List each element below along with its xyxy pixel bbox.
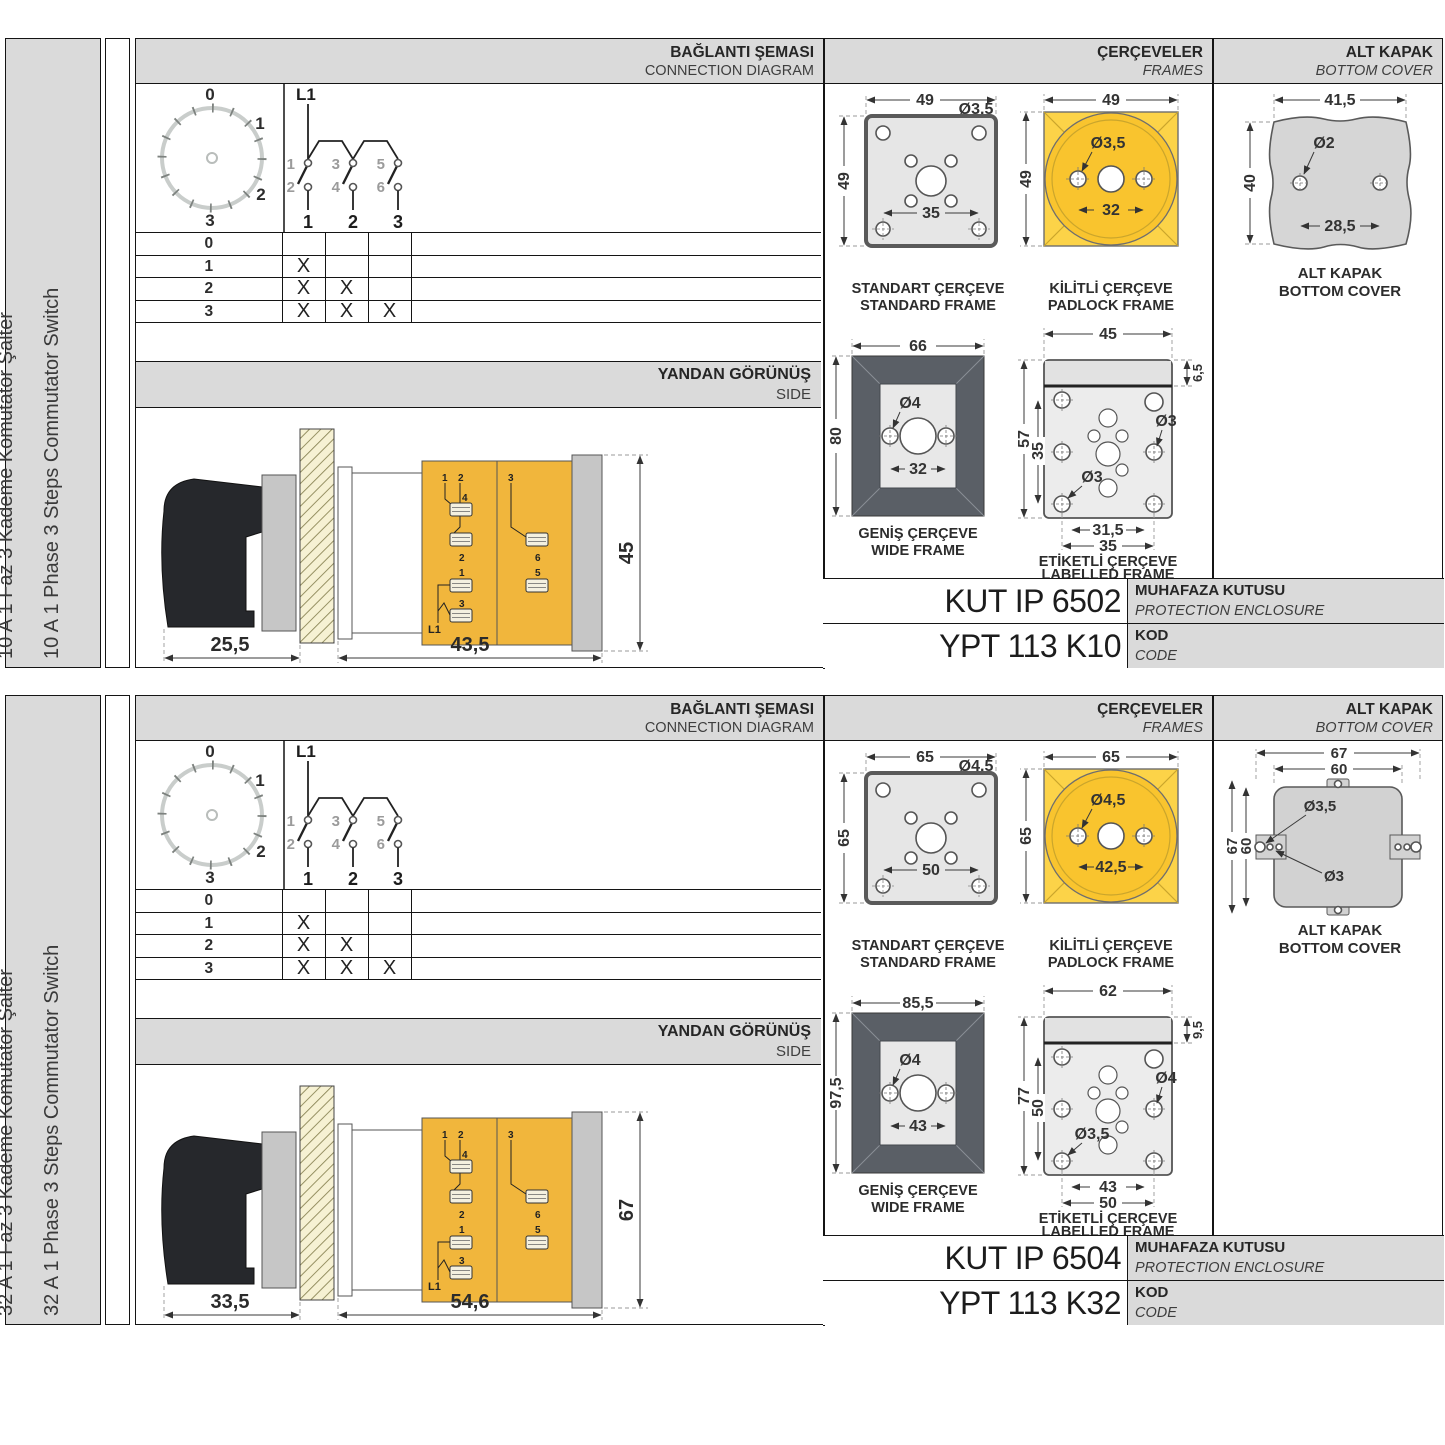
terminal-label: 5 (535, 568, 541, 579)
dim-pitch-1: 43 (1099, 1179, 1117, 1196)
header-connection-en: CONNECTION DIAGRAM (136, 719, 814, 738)
dim-width: 62 (1099, 983, 1117, 1000)
enclosure-code: KUT IP 6504 (823, 1235, 1127, 1280)
dim-width: 66 (909, 338, 927, 355)
contact-5: 5 (377, 156, 385, 173)
mark-cell: X (283, 913, 326, 935)
rear-plate (572, 455, 602, 651)
header-cover-tr: ALT KAPAK (1212, 43, 1433, 62)
mark-cell (369, 278, 412, 300)
dim-width: 65 (1102, 749, 1120, 766)
terminal-label: 1 (459, 568, 465, 579)
dial-pos-3: 3 (205, 868, 214, 887)
enclosure-label-en: PROTECTION ENCLOSURE (1135, 1258, 1444, 1278)
contact-4: 4 (332, 179, 341, 196)
mark-cell (283, 890, 326, 912)
output-2: 2 (348, 869, 358, 889)
contact-6: 6 (377, 836, 385, 853)
terminal-label: 2 (458, 1130, 464, 1141)
header-cover-tr: ALT KAPAK (1212, 700, 1433, 719)
bottom-cover-drawing: 67 60 67 60 Ø3,5 Ø3 ALT KAPAK BO (1212, 743, 1444, 963)
dim-pitch: 32 (909, 461, 927, 478)
contact-3: 3 (332, 813, 340, 830)
dim-tab: 6,5 (1190, 364, 1204, 382)
dim-width: 49 (916, 92, 934, 109)
mark-cell (369, 233, 412, 255)
dim-pitch: 42,5 (1095, 859, 1126, 876)
terminal-label: 5 (535, 1225, 541, 1236)
mark-cell (369, 256, 412, 278)
dim-height: 65 (1018, 827, 1035, 845)
panel-wall-hatched (300, 1086, 334, 1300)
product-code-label: KOD CODE (1127, 623, 1444, 668)
dial-pos-0: 0 (205, 85, 214, 104)
datasheet-body: BAĞLANTI ŞEMASI CONNECTION DIAGRAM ÇERÇE… (135, 38, 1443, 668)
mark-cell (326, 233, 369, 255)
dial-pos-3: 3 (205, 211, 214, 230)
dim-hole: Ø2 (1313, 135, 1334, 152)
header-connection-en: CONNECTION DIAGRAM (136, 62, 814, 81)
dim-width: 65 (916, 749, 934, 766)
rear-plate (572, 1112, 602, 1308)
mark-cell: X (326, 301, 369, 323)
terminal-label: 1 (442, 1130, 448, 1141)
row-label: 2 (136, 935, 283, 957)
side-header-tr: YANDAN GÖRÜNÜŞ (136, 1022, 811, 1042)
switch-handle (162, 479, 262, 627)
side-view-drawing: 1 2 3 4 (142, 415, 702, 667)
dial-pos-1: 1 (255, 114, 264, 133)
output-2: 2 (348, 212, 358, 232)
terminal-label: 1 (442, 473, 448, 484)
switching-table: 0 1 X 2 X X 3 X (136, 889, 821, 980)
header-cover-en: BOTTOM COVER (1212, 62, 1433, 81)
switching-table: 0 1 X 2 X X 3 X (136, 232, 821, 323)
mark-cell: X (326, 958, 369, 980)
mark-cell: X (283, 935, 326, 957)
frame-label-en: WIDE FRAME (871, 543, 965, 559)
dim-hole: Ø4 (899, 395, 920, 412)
dim-pitch: 28,5 (1324, 218, 1355, 235)
dim-height: 97,5 (828, 1077, 845, 1108)
enclosure-code-label: MUHAFAZA KUTUSU PROTECTION ENCLOSURE (1127, 1235, 1444, 1280)
dim-height: 45 (616, 542, 638, 564)
mark-cell (326, 913, 369, 935)
terminal-label: 4 (462, 493, 468, 504)
row-label: 3 (136, 958, 283, 980)
wide-frame-drawing: 66 Ø4 32 80 GENİŞ ÇERÇEVE WIDE FRAME (826, 334, 1011, 566)
dial-pos-2: 2 (256, 842, 265, 861)
row-label: 1 (136, 913, 283, 935)
dim-hole-right: Ø3 (1155, 413, 1176, 430)
product-code-label: KOD CODE (1127, 1280, 1444, 1325)
frame-label-en: PADLOCK FRAME (1048, 955, 1175, 971)
header-connection-tr: BAĞLANTI ŞEMASI (136, 43, 814, 62)
wide-frame-drawing: 85,5 Ø4 43 97,5 GENİŞ ÇERÇEVE WIDE F (826, 991, 1011, 1223)
side-view-header: YANDAN GÖRÜNÜŞ SIDE (136, 361, 821, 408)
frame-label-en: STANDARD FRAME (860, 955, 996, 971)
phase-label-L1: L1 (296, 742, 316, 761)
row-label: 0 (136, 233, 283, 255)
dim-pitch: 43 (909, 1118, 927, 1135)
dim-hole: Ø4 (899, 1052, 920, 1069)
dim-height: 80 (828, 427, 845, 445)
frame-label-en: STANDARD FRAME (860, 298, 996, 314)
output-3: 3 (393, 212, 403, 232)
dim-pitch-2: 35 (1099, 538, 1117, 555)
dim-height: 40 (1242, 174, 1259, 192)
mark-cell (326, 256, 369, 278)
side-view-drawing: 1 2 3 4 (142, 1072, 702, 1324)
spine-strip (105, 695, 130, 1325)
table-row: 0 (136, 890, 821, 913)
mark-cell: X (283, 256, 326, 278)
mark-cell: X (326, 278, 369, 300)
product-title-english: 32 A 1 Phase 3 Steps Commutator Switch (41, 945, 64, 1316)
frame-label-tr: KİLİTLİ ÇERÇEVE (1049, 280, 1173, 297)
mark-cell: X (283, 301, 326, 323)
side-view-header: YANDAN GÖRÜNÜŞ SIDE (136, 1018, 821, 1065)
side-header-en: SIDE (136, 385, 811, 405)
mark-cell: X (369, 958, 412, 980)
dim-inner-height: 35 (1030, 442, 1047, 460)
header-frames-en: FRAMES (823, 719, 1203, 738)
product-title-turkish: 32 A 1 Faz 3 Kademe Komütatör Şalter (0, 969, 18, 1316)
spine-strip (105, 38, 130, 668)
dial-pos-1: 1 (255, 771, 264, 790)
datasheet-body: BAĞLANTI ŞEMASI CONNECTION DIAGRAM ÇERÇE… (135, 695, 1443, 1325)
terminal-label: 6 (535, 1210, 541, 1221)
dim-width: 67 (1331, 745, 1348, 762)
dim-width: 45 (1099, 326, 1117, 343)
header-connection-diagram: BAĞLANTI ŞEMASI CONNECTION DIAGRAM (136, 696, 823, 741)
dim-hole: Ø3,5 (1091, 135, 1126, 152)
dim-height: 65 (836, 829, 853, 847)
cover-label-tr: ALT KAPAK (1298, 265, 1383, 282)
mark-cell (326, 890, 369, 912)
frame-label-tr: STANDART ÇERÇEVE (852, 938, 1005, 954)
cover-label-tr: ALT KAPAK (1298, 922, 1383, 939)
frame-label-tr: GENİŞ ÇERÇEVE (858, 525, 978, 542)
code-label-tr: KOD (1135, 1283, 1444, 1303)
table-row: 0 (136, 233, 821, 256)
mark-cell: X (369, 301, 412, 323)
dim-width: 49 (1102, 92, 1120, 109)
terminal-label-L1: L1 (428, 1281, 441, 1293)
row-label: 2 (136, 278, 283, 300)
output-3: 3 (393, 869, 403, 889)
header-bottom-cover: ALT KAPAK BOTTOM COVER (1212, 39, 1442, 84)
row-label: 3 (136, 301, 283, 323)
cover-label-en: BOTTOM COVER (1279, 283, 1401, 300)
cover-label-en: BOTTOM COVER (1279, 940, 1401, 957)
code-label-en: CODE (1135, 1303, 1444, 1323)
enclosure-label-en: PROTECTION ENCLOSURE (1135, 601, 1444, 621)
contact-1: 1 (287, 156, 295, 173)
switch-poles (298, 817, 402, 868)
frame-label-en: PADLOCK FRAME (1048, 298, 1175, 314)
dim-inner-width: 60 (1331, 761, 1348, 778)
dim-body-depth: 54,6 (451, 1291, 490, 1313)
contact-1: 1 (287, 813, 295, 830)
frame-label-tr: GENİŞ ÇERÇEVE (858, 1182, 978, 1199)
dim-hole: Ø4,5 (1091, 792, 1126, 809)
dim-width: 41,5 (1324, 92, 1355, 109)
header-connection-tr: BAĞLANTI ŞEMASI (136, 700, 814, 719)
enclosure-label-tr: MUHAFAZA KUTUSU (1135, 1238, 1444, 1258)
dim-body-depth: 43,5 (451, 634, 490, 656)
mark-cell (369, 935, 412, 957)
mounting-plate (262, 475, 296, 631)
code-label-en: CODE (1135, 646, 1444, 666)
dim-pitch: 35 (922, 205, 940, 222)
mounting-plate (262, 1132, 296, 1288)
mark-cell (369, 890, 412, 912)
terminal-label: 2 (459, 1210, 465, 1221)
dim-inner-height: 60 (1238, 838, 1255, 855)
product-code: YPT 113 K10 (823, 623, 1127, 668)
row-label: 0 (136, 890, 283, 912)
mark-cell: X (326, 935, 369, 957)
dim-width: 85,5 (902, 995, 933, 1012)
terminal-label-L1: L1 (428, 624, 441, 636)
enclosure-code-label: MUHAFAZA KUTUSU PROTECTION ENCLOSURE (1127, 578, 1444, 623)
dim-handle-depth: 25,5 (211, 634, 250, 656)
side-header-en: SIDE (136, 1042, 811, 1062)
contact-6: 6 (377, 179, 385, 196)
dim-hole-2: Ø3 (1324, 868, 1344, 885)
switch-handle (162, 1136, 262, 1284)
terminal-label: 6 (535, 553, 541, 564)
phase-label-L1: L1 (296, 85, 316, 104)
table-row: 1 X (136, 913, 821, 936)
dim-handle-depth: 33,5 (211, 1291, 250, 1313)
cover-plate (1274, 787, 1402, 907)
panel-wall-hatched (300, 429, 334, 643)
contact-2: 2 (287, 179, 295, 196)
terminal-label: 1 (459, 1225, 465, 1236)
dim-height: 49 (1018, 170, 1035, 188)
dim-hole-right: Ø4 (1155, 1070, 1176, 1087)
table-row: 2 X X (136, 278, 821, 301)
standard-frame-drawing: 65 Ø4,5 50 65 STANDART ÇERÇEVE STANDARD … (826, 743, 1011, 988)
switch-body: 1 2 3 4 (422, 1118, 572, 1302)
terminal-label: 3 (508, 1130, 514, 1141)
row-label: 1 (136, 256, 283, 278)
terminal-label: 3 (459, 1256, 465, 1267)
table-row: 1 X (136, 256, 821, 279)
switch-body: 1 2 3 4 (422, 461, 572, 645)
dim-pitch: 32 (1102, 202, 1120, 219)
product-title-turkish: 10 A 1 Faz 3 Kademe Komütatör Şalter (0, 312, 18, 659)
dim-pitch-2: 50 (1099, 1195, 1117, 1212)
product-title-english: 10 A 1 Phase 3 Steps Commutator Switch (41, 288, 64, 659)
header-frames: ÇERÇEVELER FRAMES (823, 696, 1212, 741)
code-label-tr: KOD (1135, 626, 1444, 646)
dim-hole-left: Ø3 (1081, 469, 1102, 486)
contact-4: 4 (332, 836, 341, 853)
column-divider-1 (823, 39, 825, 669)
mark-cell: X (283, 278, 326, 300)
product-section: 10 A 1 Faz 3 Kademe Komütatör Şalter 10 … (0, 38, 1445, 670)
mark-cell (369, 913, 412, 935)
header-frames-tr: ÇERÇEVELER (823, 700, 1203, 719)
header-frames: ÇERÇEVELER FRAMES (823, 39, 1212, 84)
side-header-tr: YANDAN GÖRÜNÜŞ (136, 365, 811, 385)
frame-label-tr: KİLİTLİ ÇERÇEVE (1049, 937, 1173, 954)
padlock-frame-drawing: 65 Ø4,5 42,5 65 KİLİTLİ ÇERÇEVE (1014, 743, 1204, 988)
table-row: 3 X X X (136, 958, 821, 981)
header-frames-tr: ÇERÇEVELER (823, 43, 1203, 62)
dim-height: 67 (616, 1199, 638, 1221)
padlock-frame-drawing: 49 Ø3,5 32 49 KİLİTLİ ÇERÇEVE (1014, 86, 1204, 331)
dim-hole-left: Ø3,5 (1075, 1126, 1110, 1143)
labelled-frame-drawing: 62 9,5 Ø4 Ø3,5 (1014, 981, 1204, 1236)
terminal-label: 4 (462, 1150, 468, 1161)
column-divider-1 (823, 696, 825, 1326)
product-code: YPT 113 K32 (823, 1280, 1127, 1325)
header-cover-en: BOTTOM COVER (1212, 719, 1433, 738)
frame-label-en: WIDE FRAME (871, 1200, 965, 1216)
dim-tab: 9,5 (1190, 1021, 1204, 1039)
terminal-label: 2 (458, 473, 464, 484)
output-1: 1 (303, 869, 313, 889)
dial-pos-0: 0 (205, 742, 214, 761)
dim-pitch: 50 (922, 862, 940, 879)
header-bottom-cover: ALT KAPAK BOTTOM COVER (1212, 696, 1442, 741)
rotary-dial-and-schematic: 0 1 2 3 L1 1 3 5 2 4 6 1 (136, 84, 823, 232)
dim-pitch-1: 31,5 (1092, 522, 1123, 539)
labelled-frame-drawing: 45 6,5 Ø3 Ø3 (1014, 324, 1204, 579)
header-connection-diagram: BAĞLANTI ŞEMASI CONNECTION DIAGRAM (136, 39, 823, 84)
dim-hole-1: Ø3,5 (1304, 798, 1337, 815)
terminal-label: 2 (459, 553, 465, 564)
header-frames-en: FRAMES (823, 62, 1203, 81)
table-row: 2 X X (136, 935, 821, 958)
dial-pos-2: 2 (256, 185, 265, 204)
enclosure-code: KUT IP 6502 (823, 578, 1127, 623)
mark-cell (283, 233, 326, 255)
contact-2: 2 (287, 836, 295, 853)
switch-poles (298, 160, 402, 211)
dim-height: 49 (836, 172, 853, 190)
bottom-cover-drawing: 41,5 Ø2 40 28,5 ALT KAPAK BOTTOM COVER (1212, 86, 1444, 306)
rotary-dial-and-schematic: 0 1 2 3 L1 1 3 5 2 4 6 1 (136, 741, 823, 889)
dim-inner-height: 50 (1030, 1099, 1047, 1117)
product-section: 32 A 1 Faz 3 Kademe Komütatör Şalter 32 … (0, 695, 1445, 1327)
contact-5: 5 (377, 813, 385, 830)
contact-3: 3 (332, 156, 340, 173)
output-1: 1 (303, 212, 313, 232)
enclosure-label-tr: MUHAFAZA KUTUSU (1135, 581, 1444, 601)
terminal-label: 3 (459, 599, 465, 610)
frame-label-tr: STANDART ÇERÇEVE (852, 281, 1005, 297)
side-label-panel: 32 A 1 Faz 3 Kademe Komütatör Şalter 32 … (5, 695, 101, 1325)
terminal-label: 3 (508, 473, 514, 484)
standard-frame-drawing: 49 Ø3,5 35 49 STANDART ÇERÇEVE STANDARD … (826, 86, 1011, 331)
side-label-panel: 10 A 1 Faz 3 Kademe Komütatör Şalter 10 … (5, 38, 101, 668)
mark-cell: X (283, 958, 326, 980)
table-row: 3 X X X (136, 301, 821, 324)
